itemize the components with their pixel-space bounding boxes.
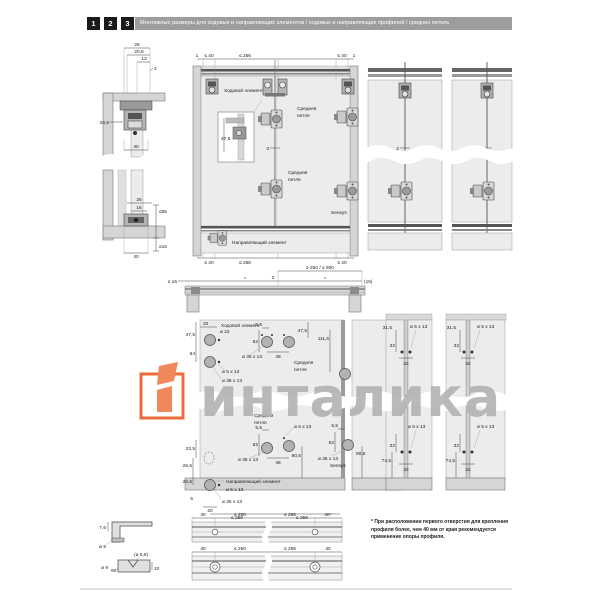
hinge2-dim-52: 52 bbox=[253, 442, 259, 448]
sensys-name: Sensys bbox=[330, 463, 346, 469]
step-3-badge: 3 bbox=[121, 17, 134, 30]
dim-le40-bottom-right: ≤ 40 bbox=[337, 260, 347, 266]
strip1b-dim-74-5: 74,5 bbox=[382, 458, 392, 464]
running-element-icon bbox=[342, 79, 354, 94]
profile-dim-10: 10 bbox=[154, 566, 160, 572]
profile-dim-7-6: 7,6 bbox=[99, 525, 106, 531]
dim-26-top: 26 bbox=[134, 42, 140, 48]
dim-le256-top: ≤ 256 bbox=[239, 53, 251, 59]
footnote: * При расположении первого отверстия для… bbox=[371, 519, 514, 542]
strip2-dia5: ø 5 x 13 bbox=[477, 324, 495, 330]
cup-hole bbox=[205, 335, 216, 346]
rail-hole-countersunk bbox=[310, 562, 320, 572]
end-connector bbox=[350, 287, 359, 294]
guide-dim-22-5: 22,5 bbox=[186, 446, 196, 452]
top-left-section-lower: 26 16 ≤55 ≥15 40 bbox=[103, 170, 167, 260]
strip2b-dim-32b: 32 bbox=[465, 467, 471, 473]
dim-26-5: 26,5 bbox=[100, 120, 110, 126]
wall-post-left bbox=[187, 295, 199, 312]
rail2-dim-40l: 40 bbox=[200, 546, 206, 552]
strip2-dim-31-5: 31,5 bbox=[447, 325, 457, 331]
dim-2: 2 bbox=[154, 66, 157, 72]
rail-hole bbox=[312, 529, 318, 535]
strip1-dim-32a: 32 bbox=[390, 343, 396, 349]
dim-le15: ≤ 15 bbox=[168, 279, 178, 285]
rail2-dim-256: ≤ 256 bbox=[284, 546, 296, 552]
drill-dim-47-5: 47,5 bbox=[186, 332, 196, 338]
dim-le55: ≤55 bbox=[159, 209, 167, 215]
top-running-rail bbox=[201, 69, 350, 72]
profile-90deg: 90° bbox=[111, 568, 118, 574]
bottom-rail-profile-row: (ø 5,8) ø 9 90° 10 bbox=[101, 546, 342, 582]
watermark: инталика bbox=[138, 360, 501, 424]
rail-hole-countersunk bbox=[210, 562, 220, 572]
dim-26-bot: 26 bbox=[136, 197, 142, 203]
middle-hinge-label-1b: петля bbox=[297, 114, 310, 119]
dim-span-250-600: ≥ 250 / ≤ 600 bbox=[306, 265, 334, 271]
running-element-icon bbox=[206, 79, 218, 94]
strip1b-dim-32b: 32 bbox=[403, 467, 409, 473]
running-element-icon bbox=[399, 83, 411, 98]
guide-dim-20: 20 bbox=[207, 508, 213, 514]
equal-mark-1: = bbox=[244, 276, 247, 281]
profile-dia-5: ø 5 bbox=[99, 544, 106, 550]
bottom-panel bbox=[103, 226, 165, 238]
running-element-icon bbox=[481, 83, 493, 98]
cup-hole bbox=[284, 337, 295, 348]
edge-cup-hole bbox=[343, 440, 354, 451]
dim-1-left: 1 bbox=[196, 53, 199, 59]
hinge1-dim-52: 52 bbox=[253, 339, 259, 345]
strip1-dia5: ø 5 x 13 bbox=[410, 324, 428, 330]
right-wall bbox=[350, 66, 358, 256]
rail-profiles: 7,6 ø 5 40 ≤ 250 ≤ 256 40 bbox=[99, 512, 342, 582]
equal-mark-2: = bbox=[324, 276, 327, 281]
watermark-text: инталика bbox=[200, 372, 501, 424]
drill-dim-47-5r: 47,5 bbox=[298, 328, 308, 334]
rail2-dim-40r: 40 bbox=[325, 546, 331, 552]
dim-16: 16 bbox=[136, 205, 142, 211]
sensys-dia35: ø 35 x 13 bbox=[318, 456, 338, 462]
strip2b-dim-32a: 32 bbox=[454, 443, 460, 449]
rail1-dim-40r: 40* bbox=[324, 512, 331, 518]
drill-dim-111-5: 111,5 bbox=[318, 336, 330, 342]
guide-dim-26-5b: 26,5 bbox=[183, 479, 193, 485]
hinge2-dim-48: 48 bbox=[275, 460, 281, 466]
left-wall bbox=[193, 66, 201, 256]
drill-dia-22: ø 22 bbox=[220, 329, 230, 335]
sensys-dim-52: 52 bbox=[329, 440, 335, 446]
middle-hinge-label-2: Средняя bbox=[288, 170, 308, 176]
middle-hinge-label-2b: петля bbox=[288, 178, 301, 183]
dim-20-5: 20,5 bbox=[134, 49, 144, 55]
strip2-dim-32a: 32 bbox=[454, 343, 460, 349]
gap-dim-3: 3 bbox=[266, 146, 269, 152]
top-rail-profile bbox=[120, 101, 152, 110]
door-right bbox=[276, 76, 350, 226]
hinge2-dim-90-5: 90,5 bbox=[292, 453, 302, 459]
plan-section: ≥ 250 / ≤ 600 ≤ 15 = 2 = (15) bbox=[168, 265, 373, 312]
dim-15-paren: (15) bbox=[364, 279, 373, 285]
front-view: 1 ≤ 40 ≤ 256 ≤ 40 1 Ходовой элемент Сред… bbox=[193, 53, 358, 266]
guide-dim-5: 5 bbox=[190, 496, 193, 502]
technical-drawing: 26 20,5 13 2 26,5 40 bbox=[0, 0, 600, 600]
running-element-label: Ходовой элемент bbox=[224, 87, 264, 94]
bottom-guide-rail bbox=[201, 226, 350, 229]
strip1b-dim-32a: 32 bbox=[390, 443, 396, 449]
cup-hole bbox=[262, 337, 273, 348]
dim-le40-right: ≤ 40 bbox=[337, 53, 347, 59]
guide-dia35: ø 35 x 13 bbox=[222, 499, 242, 505]
sensys-label: Sensys bbox=[331, 210, 347, 216]
step-indicator: 1 2 3 bbox=[87, 17, 134, 30]
intalika-logo-icon bbox=[138, 360, 190, 422]
drill-dim-20: 20 bbox=[203, 321, 209, 327]
middle-hinge-label-1: Средняя bbox=[297, 106, 317, 112]
dim-1-right: 1 bbox=[353, 53, 356, 59]
dim-le40-bottom-left: ≤ 40 bbox=[204, 260, 214, 266]
catalog-page: 1 2 3 Монтажные размеры для ходовых и на… bbox=[0, 0, 600, 600]
rail-hole bbox=[212, 529, 218, 535]
dim-13: 13 bbox=[141, 56, 147, 62]
strip2b-dim-74-5: 74,5 bbox=[446, 458, 456, 464]
dim-le40-left: ≤ 40 bbox=[204, 53, 214, 59]
hinge2-dia35: ø 35 x 13 bbox=[238, 457, 258, 463]
profile-dia-9: ø 9 bbox=[101, 565, 108, 571]
guide-element-label: Направляющий элемент bbox=[232, 239, 288, 246]
drill-dim-64: 64 bbox=[190, 351, 196, 357]
step-1-badge: 1 bbox=[87, 17, 100, 30]
end-connector bbox=[191, 287, 200, 294]
dim-2-plan: 2 bbox=[272, 275, 275, 281]
rail1-dim-256: ≤ 256 bbox=[284, 512, 296, 518]
wall-post-right bbox=[349, 295, 361, 312]
right-partial-views: 2 2 bbox=[366, 62, 514, 250]
guide-cup-hole bbox=[205, 480, 216, 491]
rail1-dim-40l: 40 bbox=[200, 512, 206, 518]
hinge1-dim-5-5: 5,5 bbox=[255, 322, 262, 328]
step-2-badge: 2 bbox=[104, 17, 117, 30]
profile-dia-5-8: (ø 5,8) bbox=[134, 552, 149, 558]
dim-ge15: ≥15 bbox=[159, 244, 167, 250]
cup-hole bbox=[284, 441, 295, 452]
dim-le256-bottom: ≤ 256 bbox=[239, 260, 251, 266]
inset-dim-47-5: 47,5 bbox=[221, 136, 231, 142]
page-title: Монтажные размеры для ходовых и направля… bbox=[135, 17, 512, 30]
guide-dim-26-5a: 26,5 bbox=[183, 463, 193, 469]
dim-40-top: 40 bbox=[133, 144, 139, 150]
strip1-dim-31-5: 31,5 bbox=[383, 325, 393, 331]
rail1-dim-250: ≤ 250 bbox=[234, 512, 246, 518]
dim-40-bot: 40 bbox=[133, 254, 139, 260]
rail-plan bbox=[185, 286, 365, 295]
guide-dia5: ø 5 x 13 bbox=[226, 487, 244, 493]
top-left-section-upper: 26 20,5 13 2 26,5 40 bbox=[100, 42, 170, 172]
rail2-dim-250: ≤ 250 bbox=[234, 546, 246, 552]
guide-label: Направляющий элемент bbox=[226, 478, 282, 485]
cup-hole bbox=[262, 443, 273, 454]
sensys-dim-90-5: 90,5 bbox=[356, 451, 366, 457]
